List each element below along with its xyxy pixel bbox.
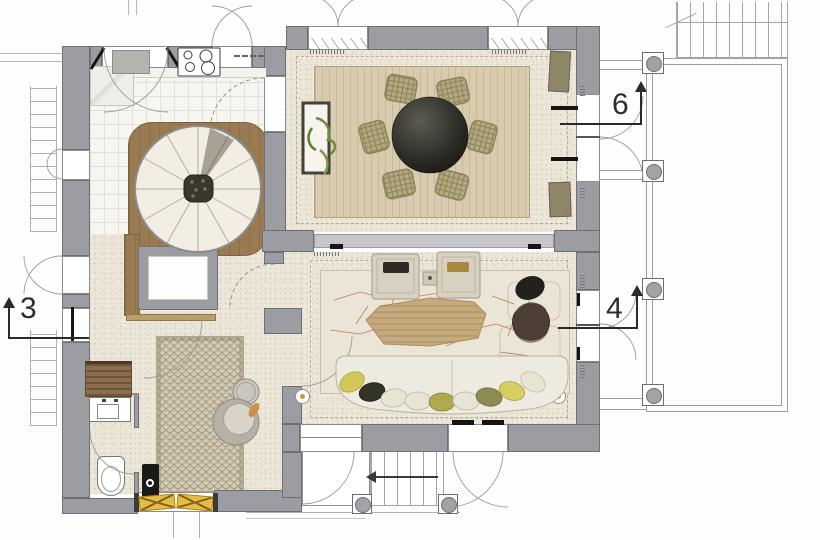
window — [300, 424, 362, 452]
section-arrow-head — [631, 285, 643, 296]
exterior-stair-upper — [676, 2, 788, 58]
floor-light — [295, 389, 310, 404]
curtain-squiggle — [580, 274, 585, 288]
kitchen-sink — [112, 50, 150, 74]
section-label: 6 — [612, 90, 629, 120]
basin — [97, 404, 119, 419]
faucet — [114, 399, 118, 402]
door-leaf — [71, 307, 74, 341]
window — [62, 256, 90, 294]
floor-plan: 3 4 6 — [0, 0, 820, 540]
french-door-mullion — [576, 136, 600, 138]
stair-direction-arrow — [366, 471, 376, 483]
door-leaf — [482, 420, 504, 425]
toilet-bowl — [101, 466, 121, 492]
wall-segment — [62, 180, 90, 256]
stove-door — [146, 479, 154, 487]
terrace-railing — [652, 64, 782, 406]
section-arrow-line — [636, 296, 638, 329]
window — [488, 26, 548, 50]
section-arrow-head — [635, 81, 647, 92]
terrace-column — [642, 278, 664, 300]
elevator-cab — [148, 256, 208, 300]
section-cut-line — [558, 327, 638, 329]
wall-sconce — [330, 244, 343, 249]
french-door — [576, 94, 600, 182]
curtain-squiggle — [580, 186, 585, 198]
site-line — [0, 53, 62, 54]
faucet — [102, 399, 106, 402]
site-line — [136, 0, 137, 15]
door-leaf — [551, 157, 578, 161]
terrace-connector — [600, 60, 646, 70]
exterior-steps-left — [30, 86, 57, 232]
section-arrow-line — [640, 92, 642, 125]
section-cut-line — [9, 337, 89, 339]
site-line — [128, 0, 129, 15]
door-step-line — [173, 512, 174, 538]
door-leaf — [577, 347, 580, 360]
door-step-line — [199, 512, 200, 538]
dining-rug — [314, 66, 530, 218]
entry-door-post — [213, 493, 218, 512]
terrace-column — [642, 384, 664, 406]
stair-column — [438, 494, 458, 514]
wall-segment — [264, 132, 286, 232]
door-leaf — [452, 420, 474, 425]
door-leaf — [551, 106, 578, 110]
curtain-squiggle — [580, 364, 585, 378]
entry-door-leaf — [138, 493, 175, 511]
wall-segment — [282, 452, 302, 498]
wall-segment — [62, 498, 138, 514]
stair-line — [676, 22, 788, 23]
vanity-sink — [89, 397, 131, 422]
toilet — [97, 456, 125, 496]
living-rug — [320, 270, 570, 394]
curtain-squiggle — [492, 50, 526, 54]
door-leaf — [577, 293, 580, 306]
wall-sconce — [528, 244, 541, 249]
window — [62, 150, 90, 180]
window — [212, 46, 252, 68]
stair-wood-floor — [128, 122, 268, 256]
section-label: 4 — [606, 294, 623, 324]
stair-direction-line — [374, 476, 438, 478]
curtain-squiggle — [310, 50, 344, 54]
bench — [85, 361, 132, 397]
stair-column — [352, 494, 372, 514]
curtain-squiggle — [580, 84, 585, 96]
wall-segment — [282, 424, 300, 452]
terrace-connector — [600, 398, 646, 410]
window — [308, 26, 368, 50]
threshold — [126, 314, 216, 321]
wall-segment — [554, 230, 600, 252]
terrace-column — [642, 52, 664, 74]
window-mullion — [300, 437, 362, 438]
curtain-panel — [548, 182, 571, 218]
section-cut-line — [560, 123, 642, 125]
wc-partition — [134, 393, 139, 428]
entry-door-leaf — [176, 493, 213, 511]
wall-segment — [264, 252, 284, 264]
section-label: 3 — [20, 294, 37, 324]
wall-segment — [264, 46, 286, 76]
terrace-column — [642, 160, 664, 182]
section-arrow-line — [8, 308, 10, 339]
step-line — [246, 518, 366, 519]
section-arrow-head — [3, 297, 15, 308]
wall-segment — [62, 294, 90, 308]
upper-cabinet-dashed — [234, 55, 264, 57]
wall-segment — [262, 230, 314, 252]
door-opening — [448, 424, 508, 452]
door-opening — [264, 76, 286, 132]
floor-light — [551, 389, 566, 404]
wall-segment — [264, 308, 302, 334]
french-door-mullion — [576, 324, 600, 326]
step-band — [314, 234, 554, 248]
terrace-connector — [600, 170, 646, 180]
wall-segment — [362, 424, 448, 452]
entry-rug — [156, 336, 244, 496]
curtain-panel — [548, 50, 571, 92]
curtain-squiggle — [314, 252, 340, 256]
wall-segment — [508, 424, 600, 452]
wall-segment — [62, 46, 90, 150]
site-line — [0, 61, 62, 62]
exterior-steps-left — [30, 330, 57, 426]
wall-segment — [368, 26, 488, 50]
wall-segment — [286, 26, 308, 50]
